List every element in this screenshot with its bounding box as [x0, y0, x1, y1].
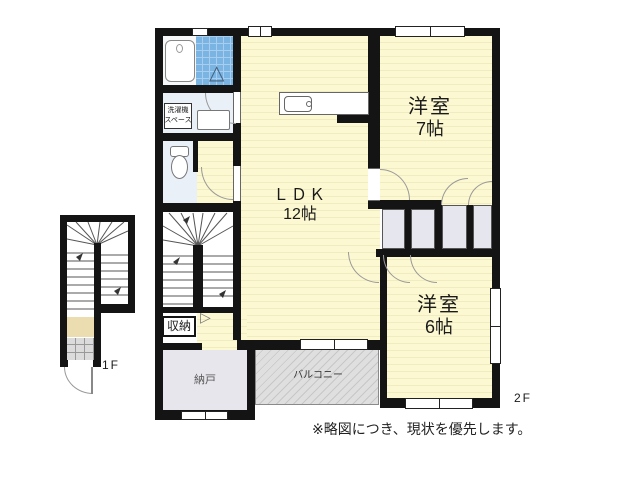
staircase-1f — [60, 215, 135, 367]
kitchen-faucet-icon — [306, 101, 312, 107]
wall — [155, 133, 233, 141]
wall — [163, 307, 233, 313]
floor-label-1f: 1F — [102, 358, 120, 372]
window-bathroom — [192, 28, 208, 36]
closet-panel — [411, 209, 435, 249]
room-label-western7: 洋室 7帖 — [378, 95, 482, 141]
door-gap-hall — [233, 166, 241, 201]
disclaimer-note: ※略図につき、現状を優先します。 — [312, 421, 531, 438]
window-ldk-top — [248, 26, 272, 37]
bath-folding-door-icon: △ — [209, 60, 224, 85]
staircase-2f — [163, 212, 233, 307]
wall — [247, 350, 255, 413]
room-size: 6帖 — [387, 317, 491, 339]
room-size: 7帖 — [378, 119, 482, 141]
closet-panel — [473, 205, 492, 249]
closet-folding-door-icon: ▷ — [200, 309, 211, 326]
room-name: ＬＤＫ — [250, 186, 350, 205]
wall — [435, 202, 442, 249]
toilet-bowl-icon — [171, 155, 188, 179]
wall — [155, 85, 233, 93]
window-western6-bottom — [405, 398, 473, 409]
entrance-door-arc — [64, 367, 93, 394]
closet-panel — [442, 205, 467, 249]
room-name: 洋室 — [387, 293, 491, 317]
wall — [193, 141, 198, 172]
washbasin-icon — [197, 110, 230, 130]
closet-label: 収納 — [163, 319, 195, 333]
window-western6-right — [490, 288, 501, 364]
wall — [380, 253, 387, 403]
room-label-ldk: ＬＤＫ 12帖 — [250, 186, 350, 224]
bathtub-faucet-icon — [176, 44, 183, 53]
room-size: 12帖 — [250, 205, 350, 224]
balcony-label: バルコニー — [283, 370, 353, 382]
wall — [368, 200, 442, 209]
wall — [155, 343, 202, 350]
laundry-space-label: 洗濯機 スペース — [164, 106, 192, 126]
room-name: 洋室 — [378, 95, 482, 119]
window-western7-top — [395, 26, 465, 37]
door-gap-western7 — [368, 168, 380, 201]
floor-label-2f: 2F — [514, 391, 532, 405]
closet-panel — [382, 209, 405, 249]
window-ldk-balcony — [300, 339, 368, 350]
entrance-door-leaf — [91, 367, 93, 394]
wall — [337, 115, 368, 123]
room-label-western6: 洋室 6帖 — [387, 293, 491, 339]
wall — [155, 203, 233, 212]
storeroom-label: 納戸 — [180, 374, 230, 387]
window-storeroom-bottom — [181, 411, 228, 420]
floor-plan: △ 収納 ▷ ＬＤＫ 12帖 洋室 — [0, 0, 640, 480]
